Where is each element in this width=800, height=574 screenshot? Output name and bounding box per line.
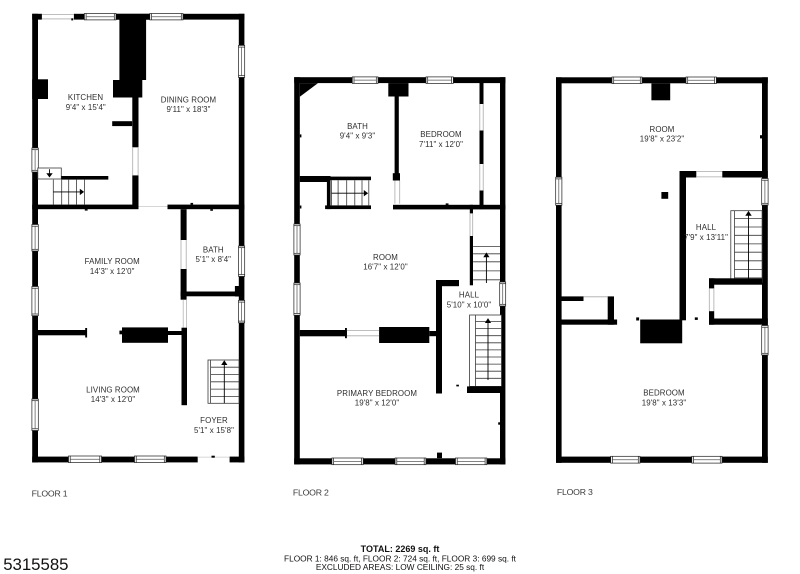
svg-text:FLOOR 3: FLOOR 3 [557,487,593,497]
svg-text:19'8" x 12'0": 19'8" x 12'0" [355,399,400,408]
svg-text:5'10" x 10'0": 5'10" x 10'0" [447,300,492,309]
svg-text:7'11" x 12'0": 7'11" x 12'0" [419,140,463,149]
svg-text:5'1" x 15'8": 5'1" x 15'8" [194,426,234,435]
svg-text:FOYER: FOYER [200,416,228,425]
svg-text:BEDROOM: BEDROOM [420,130,461,139]
svg-text:BATH: BATH [203,245,224,254]
svg-text:FLOOR 1: FLOOR 1 [32,489,68,499]
svg-text:BEDROOM: BEDROOM [643,389,684,398]
svg-text:LIVING ROOM: LIVING ROOM [86,385,140,394]
svg-text:ROOM: ROOM [650,125,675,134]
svg-text:KITCHEN: KITCHEN [68,93,104,102]
svg-text:9'11" x 18'3": 9'11" x 18'3" [167,105,211,114]
svg-text:7'9" x 13'11": 7'9" x 13'11" [684,233,728,242]
svg-text:14'3" x 12'0": 14'3" x 12'0" [91,395,136,404]
svg-text:19'8" x 23'2": 19'8" x 23'2" [640,135,685,144]
svg-text:BATH: BATH [347,122,368,131]
svg-text:EXCLUDED AREAS: LOW CEILING: 2: EXCLUDED AREAS: LOW CEILING: 25 sq. ft [316,562,485,572]
svg-text:19'8" x 13'3": 19'8" x 13'3" [642,398,687,407]
svg-text:14'3" x 12'0": 14'3" x 12'0" [90,267,135,276]
svg-text:5315585: 5315585 [3,555,68,574]
svg-text:9'4" x 9'3": 9'4" x 9'3" [340,132,376,141]
svg-text:FAMILY ROOM: FAMILY ROOM [85,257,140,266]
svg-text:HALL: HALL [696,223,717,232]
svg-text:5'1" x 8'4": 5'1" x 8'4" [195,255,231,264]
svg-text:FLOOR 2: FLOOR 2 [293,487,329,497]
svg-text:ROOM: ROOM [373,253,398,262]
svg-text:16'7" x 12'0": 16'7" x 12'0" [363,263,408,272]
svg-text:PRIMARY BEDROOM: PRIMARY BEDROOM [337,389,417,398]
svg-text:9'4" x 15'4": 9'4" x 15'4" [66,103,106,112]
svg-text:HALL: HALL [459,291,480,300]
svg-text:DINING ROOM: DINING ROOM [161,95,216,104]
